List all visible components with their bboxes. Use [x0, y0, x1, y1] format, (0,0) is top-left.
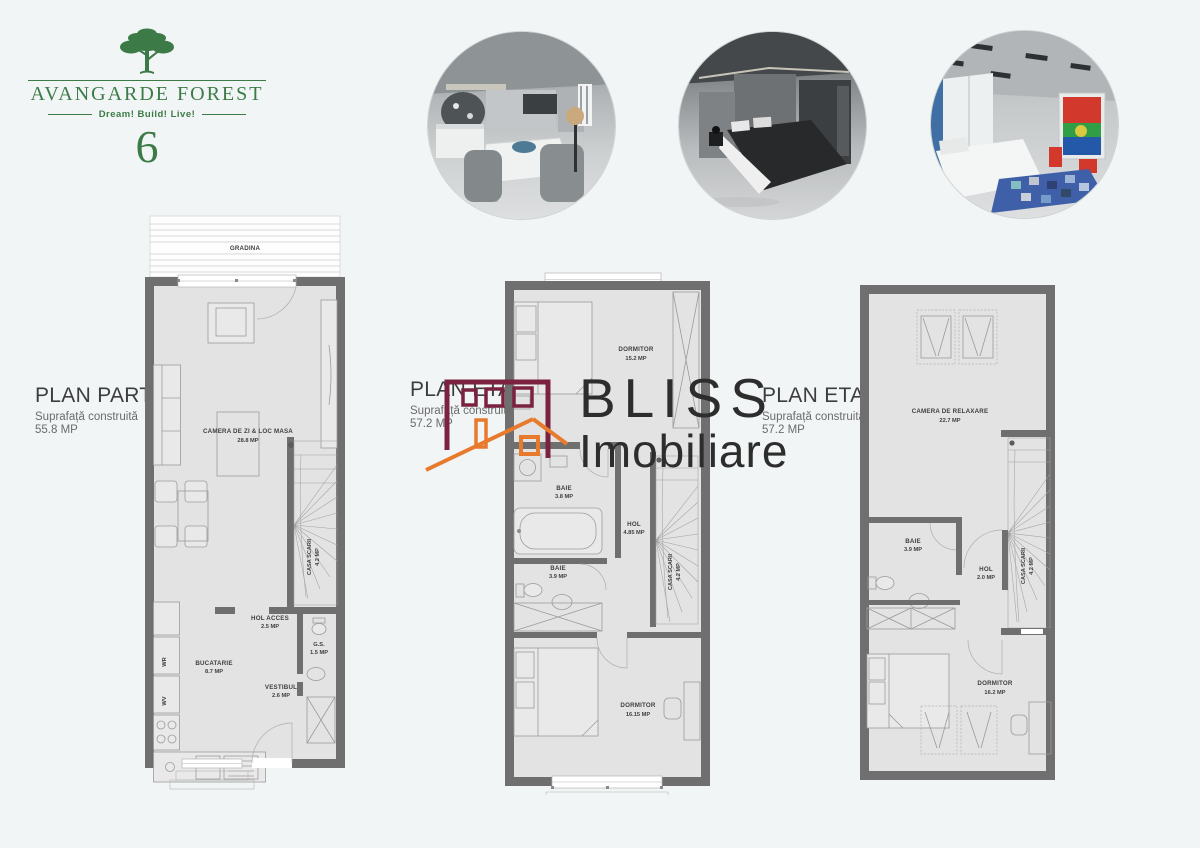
bed [867, 654, 949, 728]
room-label-hol: HOL [627, 521, 641, 528]
room-label-bucatarie: BUCATARIE [195, 660, 232, 667]
room-label-dormitor2: DORMITOR [620, 702, 656, 709]
armchair [208, 303, 254, 343]
room-label-gradina: GRADINA [230, 245, 261, 252]
room-area-dormitor2: 16.15 MP [626, 712, 651, 718]
brand-tagline: Dream! Build! Live! [99, 109, 196, 120]
bath-wall [864, 517, 962, 523]
brand-number: 6 [22, 124, 272, 170]
room-area-hol: 4.85 MP [623, 530, 644, 536]
photo-kids-room [930, 30, 1119, 219]
room-label-baie: BAIE [905, 538, 921, 545]
partition-wall [215, 607, 341, 614]
room-area-stairs: 4.2 MP [315, 548, 321, 566]
room-label-vestibul: VESTIBUL [265, 684, 297, 691]
room-label-stairs: CASA SCARII [307, 538, 313, 575]
room-label-stairs: CASA SCARII [668, 553, 674, 590]
door-opening [235, 607, 269, 614]
bed2 [514, 648, 598, 736]
tree-icon [104, 26, 190, 78]
tall-cabinet [321, 300, 337, 448]
floorplan-etaj1: DORMITOR 15.2 MP BAIE 3.8 MP BAIE 3.9 MP… [500, 270, 715, 795]
room-area-hol-acces: 2.5 MP [261, 624, 279, 630]
brochure-page: { "logo": { "title": "AVANGARDE FOREST",… [0, 0, 1200, 848]
room-label-baie2: BAIE [550, 565, 566, 572]
room-area-dormitor1: 15.2 MP [625, 356, 646, 362]
room-area-bucatarie: 8.7 MP [205, 669, 223, 675]
sofa [154, 365, 181, 465]
room-area-stairs: 4.2 MP [676, 563, 682, 581]
watermark-imobiliare: Imobiliare [579, 424, 788, 478]
photo-living-dining [427, 31, 616, 220]
appliance-wv: WV [162, 696, 168, 705]
tagline-dash-right [202, 114, 246, 115]
partition-wall [864, 600, 960, 605]
brand-title: AVANGARDE FOREST [22, 83, 272, 106]
room-label-living: CAMERA DE ZI & LOC MASA [203, 428, 293, 435]
tagline-dash-left [48, 114, 92, 115]
door-opening2 [597, 632, 627, 638]
bathtub [514, 508, 602, 554]
bottom-window [546, 776, 668, 795]
floorplan-parter: GRADINA CAMERA DE ZI & LOC MASA 28.8 MP … [140, 215, 350, 800]
logo-divider-top [28, 80, 266, 81]
room-area-vestibul: 2.6 MP [272, 693, 290, 699]
room-area-baie1: 3.8 MP [555, 494, 573, 500]
watermark-bliss: BLISS [579, 366, 775, 430]
room-area-stairs: 4.2 MP [1029, 557, 1035, 575]
room-area-gs: 1.5 MP [310, 650, 328, 656]
photo-bedroom [678, 31, 867, 220]
brand-tagline-row: Dream! Build! Live! [22, 109, 272, 120]
appliance-wr: WR [162, 657, 168, 666]
room-area-baie: 3.9 MP [904, 547, 922, 553]
room-area-dormitor: 16.2 MP [984, 690, 1005, 696]
room-label-hol-acces: HOL ACCES [251, 615, 289, 622]
room-area-living: 28.8 MP [237, 438, 258, 444]
stove [154, 715, 180, 750]
bath-wall2 [956, 517, 962, 575]
room-label-baie1: BAIE [556, 485, 572, 492]
bliss-house-icon [420, 368, 590, 483]
room-area-hol: 2.0 MP [977, 575, 995, 581]
floorplan-etaj2: CAMERA DE RELAXARE 22.7 MP CASA SCARII 4… [855, 278, 1065, 793]
room-label-relaxare: CAMERA DE RELAXARE [912, 408, 989, 415]
room-label-gs: G.S. [313, 642, 325, 648]
room-area-relaxare: 22.7 MP [939, 418, 960, 424]
room-label-dormitor1: DORMITOR [618, 346, 654, 353]
room-label-dormitor: DORMITOR [977, 680, 1013, 687]
brand-logo: AVANGARDE FOREST Dream! Build! Live! 6 [22, 26, 272, 170]
garden-deck: GRADINA [150, 216, 340, 277]
room-label-stairs: CASA SCARII [1021, 547, 1027, 584]
room-label-hol: HOL [979, 566, 993, 573]
bath-wall2 [509, 558, 607, 564]
room-area-baie2: 3.9 MP [549, 574, 567, 580]
